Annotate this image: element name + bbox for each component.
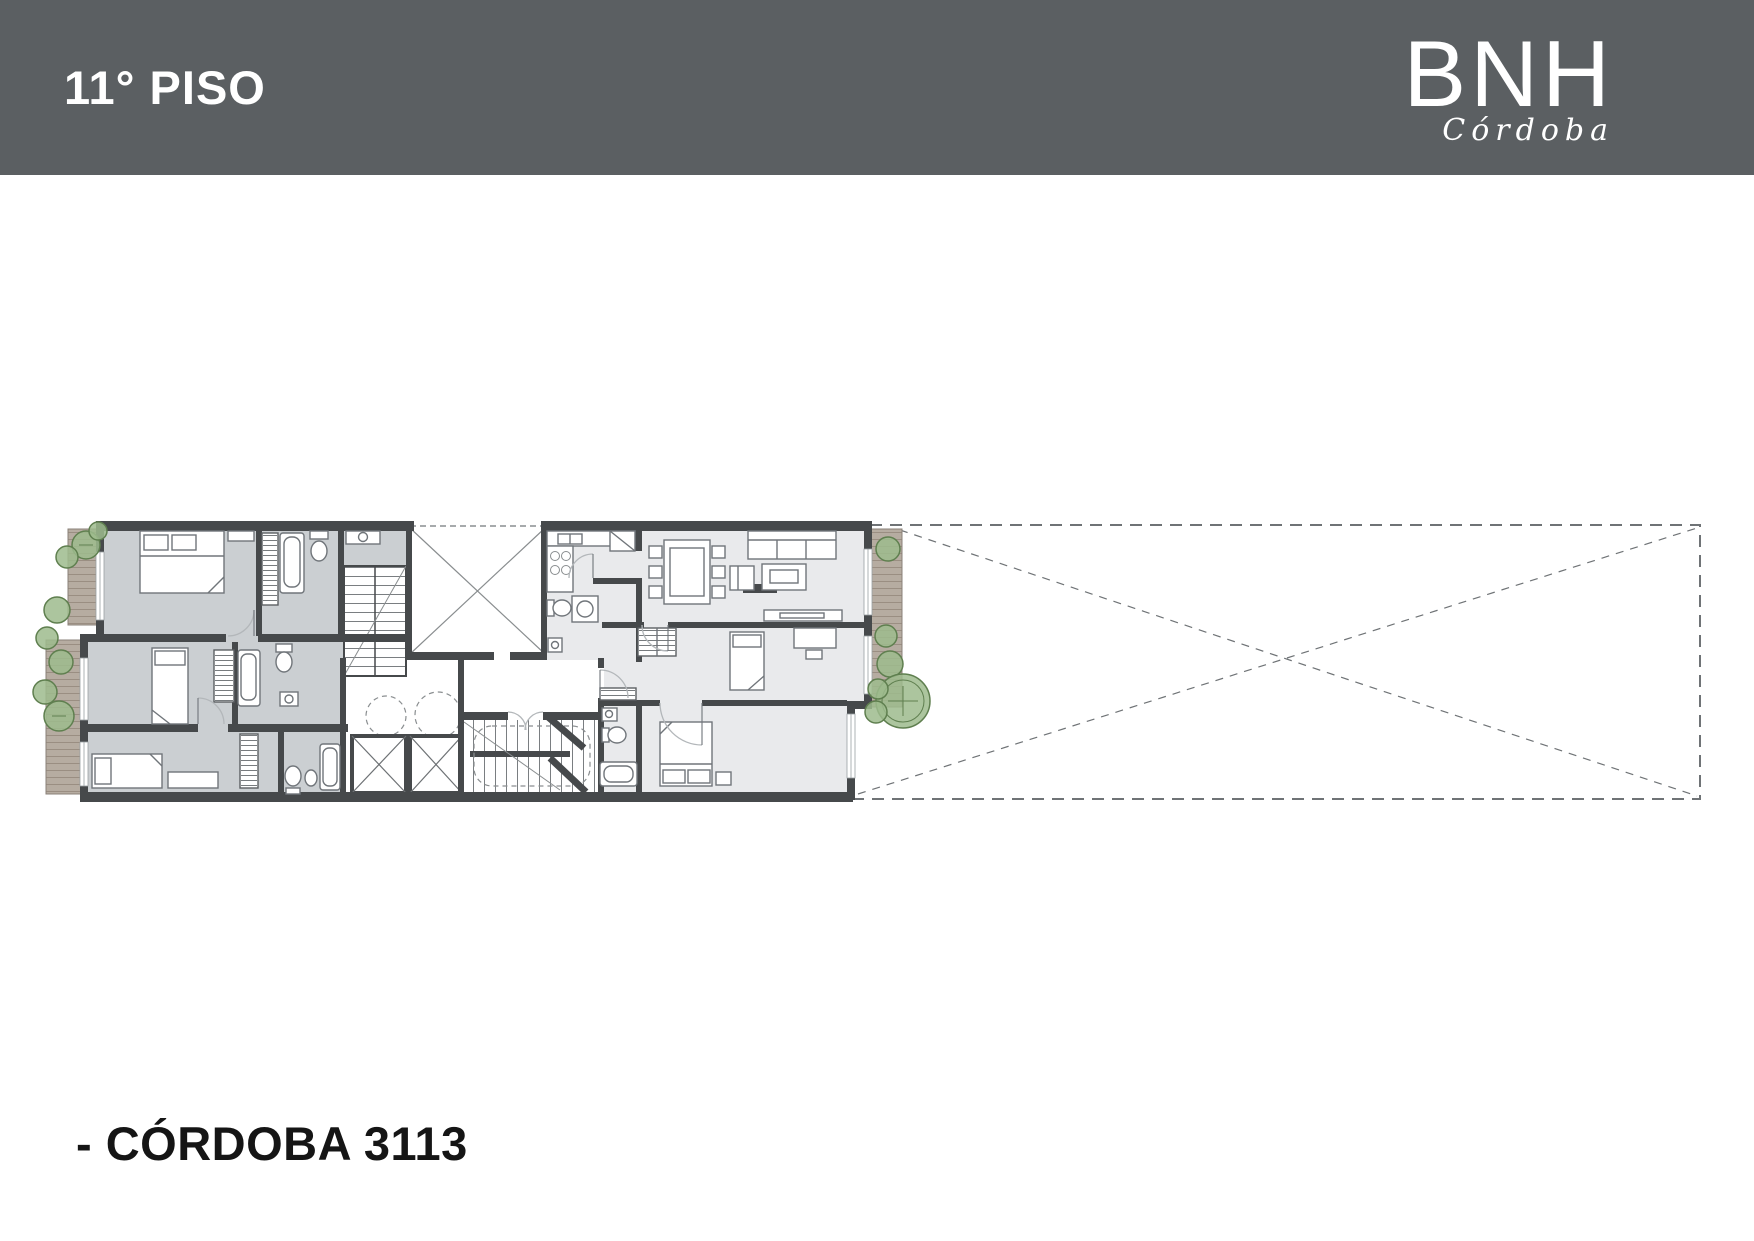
dining-table-icon (664, 540, 710, 604)
sink-icon (280, 692, 298, 706)
void-shaft (410, 526, 545, 656)
desk-icon (168, 772, 218, 788)
sink-icon (548, 638, 562, 652)
floor-plan-svg (0, 0, 1754, 1241)
toilet-icon (608, 727, 626, 743)
bidet-icon (305, 770, 317, 786)
toilet-icon (553, 600, 571, 616)
patio-circles (366, 692, 461, 738)
nightstand-icon (716, 772, 731, 785)
internal-staircase (344, 566, 406, 676)
washer-icon (572, 596, 598, 622)
main-staircase (464, 716, 598, 792)
toilet-icon (276, 652, 292, 672)
expansion-area (851, 525, 1700, 799)
toilet-icon (285, 766, 301, 786)
address-label: - CÓRDOBA 3113 (76, 1116, 468, 1171)
elevators (352, 736, 462, 793)
sofa-icon (748, 531, 836, 559)
armchair-icon (730, 566, 754, 590)
toilet-icon (311, 541, 327, 561)
desk-icon (794, 628, 836, 648)
dresser-icon (228, 531, 254, 541)
coffee-table-icon (762, 564, 806, 590)
tv-console-icon (764, 610, 842, 621)
